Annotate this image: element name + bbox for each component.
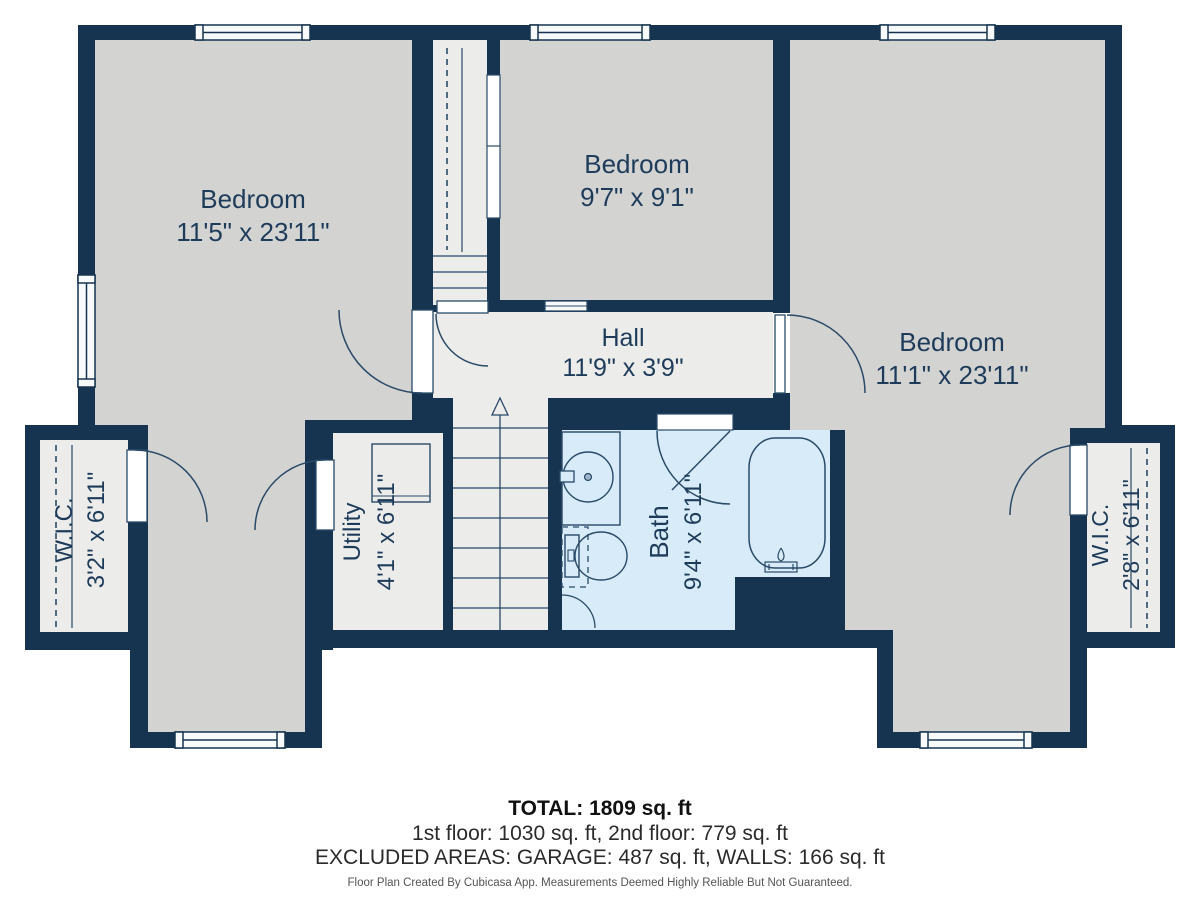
floor-plan-canvas: Bedroom 11'5" x 23'11" Bedroom 9'7" x 9'… [0, 0, 1200, 900]
sink-drain-icon [585, 474, 592, 481]
room-closet-strip [433, 40, 487, 305]
label-bedroom-middle-dims: 9'7" x 9'1" [580, 182, 694, 212]
window-bottom-right [920, 732, 1032, 748]
window-left-wall [78, 275, 95, 387]
label-bedroom-left-dims: 11'5" x 23'11" [176, 217, 329, 247]
label-bedroom-left-name: Bedroom [200, 184, 306, 214]
label-bedroom-right-name: Bedroom [899, 327, 1005, 357]
footer-total-text: TOTAL: 1809 sq. ft [508, 797, 692, 820]
label-wic-left-name: W.I.C. [51, 497, 78, 562]
label-utility-name: Utility [339, 503, 366, 562]
label-wic-right-name: W.I.C. [1087, 504, 1113, 567]
window-bottom-left [175, 732, 285, 748]
footer-floors-text: 1st floor: 1030 sq. ft, 2nd floor: 779 s… [412, 822, 788, 845]
label-wic-right-dims: 2'8" x 6'11" [1118, 479, 1144, 591]
label-hall-dims: 11'9" x 3'9" [562, 354, 683, 382]
door-closet-sliding [487, 75, 500, 218]
window-top-right [880, 25, 995, 40]
label-bedroom-middle-name: Bedroom [584, 149, 690, 179]
footer-disclaimer-text: Floor Plan Created By Cubicasa App. Meas… [348, 877, 853, 889]
window-top-left [195, 25, 310, 40]
sink-faucet-icon [560, 471, 574, 482]
window-top-middle [530, 25, 650, 40]
floor-plan-page: Bedroom 11'5" x 23'11" Bedroom 9'7" x 9'… [0, 0, 1200, 900]
label-bedroom-right-dims: 11'1" x 23'11" [875, 360, 1028, 390]
label-wic-left-dims: 3'2" x 6'11" [83, 472, 110, 589]
label-bath-dims: 9'4" x 6'11" [680, 474, 707, 591]
label-utility-dims: 4'1" x 6'11" [373, 474, 400, 591]
label-hall-name: Hall [601, 324, 644, 352]
footer: TOTAL: 1809 sq. ft 1st floor: 1030 sq. f… [315, 797, 885, 889]
opening-middle-bedroom-hall [545, 301, 587, 311]
label-bath-name: Bath [644, 505, 674, 559]
footer-excluded-text: EXCLUDED AREAS: GARAGE: 487 sq. ft, WALL… [315, 846, 885, 869]
